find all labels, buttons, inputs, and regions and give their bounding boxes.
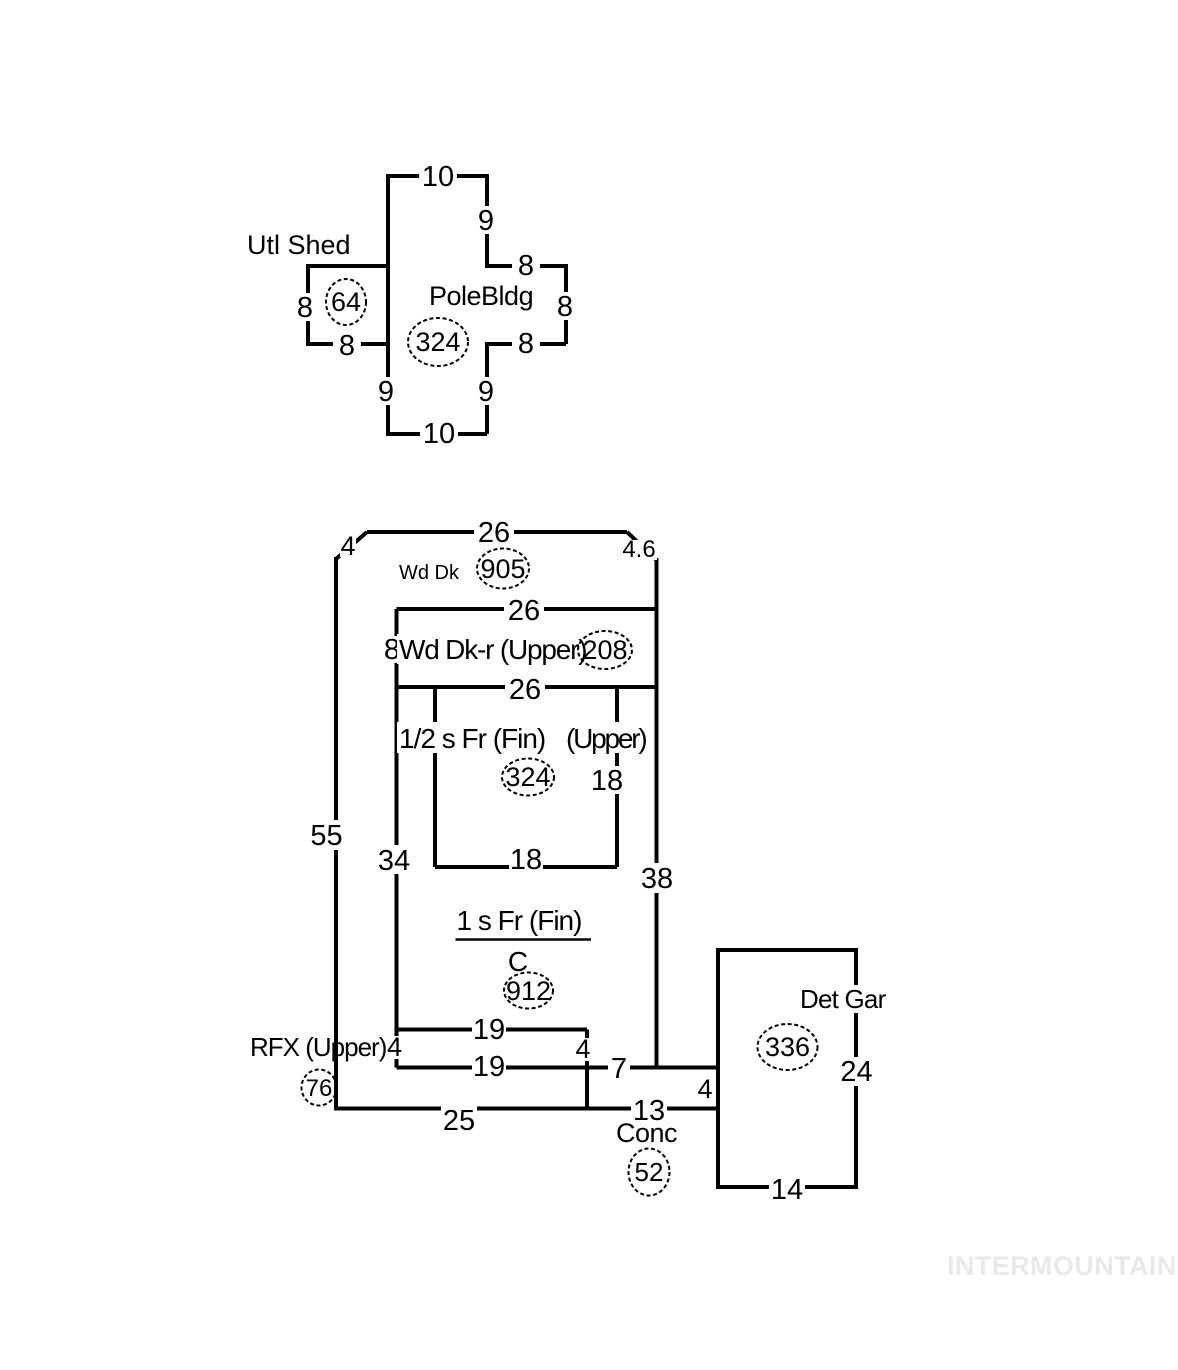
svg-text:8: 8: [297, 292, 313, 324]
svg-text:14: 14: [771, 1174, 803, 1206]
svg-text:9: 9: [378, 376, 394, 408]
svg-text:7: 7: [611, 1053, 627, 1085]
svg-text:10: 10: [423, 418, 455, 450]
svg-text:76: 76: [306, 1075, 333, 1102]
svg-text:Wd Dk-r (Upper): Wd Dk-r (Upper): [399, 634, 586, 665]
svg-text:38: 38: [641, 863, 673, 895]
svg-text:C: C: [508, 946, 528, 977]
svg-text:10: 10: [422, 161, 454, 193]
svg-text:INTERMOUNTAIN: INTERMOUNTAIN: [947, 1251, 1177, 1281]
svg-text:Wd Dk: Wd Dk: [399, 562, 460, 584]
svg-text:324: 324: [415, 327, 460, 357]
svg-text:52: 52: [635, 1157, 664, 1187]
svg-text:4: 4: [387, 1032, 402, 1062]
svg-text:26: 26: [509, 674, 541, 706]
svg-text:912: 912: [506, 976, 551, 1006]
svg-text:324: 324: [505, 762, 550, 792]
svg-text:8: 8: [339, 330, 355, 362]
svg-text:Conc: Conc: [616, 1118, 677, 1148]
svg-text:905: 905: [480, 554, 525, 584]
svg-text:25: 25: [443, 1105, 475, 1137]
svg-text:8: 8: [518, 250, 534, 282]
svg-text:4.6: 4.6: [622, 536, 655, 563]
svg-text:RFX (Upper): RFX (Upper): [250, 1032, 387, 1062]
svg-text:Utl Shed: Utl Shed: [247, 230, 351, 260]
svg-text:26: 26: [478, 517, 510, 549]
svg-text:64: 64: [331, 287, 361, 317]
svg-text:9: 9: [478, 376, 494, 408]
svg-text:26: 26: [508, 595, 540, 627]
svg-text:9: 9: [478, 205, 494, 237]
svg-text:55: 55: [310, 820, 342, 852]
svg-text:(Upper): (Upper): [566, 723, 646, 754]
svg-text:336: 336: [765, 1032, 810, 1062]
svg-text:8: 8: [518, 328, 534, 360]
svg-text:34: 34: [378, 845, 410, 877]
svg-text:1/2 s Fr (Fin): 1/2 s Fr (Fin): [399, 723, 545, 754]
svg-text:4: 4: [575, 1034, 590, 1064]
svg-text:1 s Fr (Fin): 1 s Fr (Fin): [457, 905, 582, 936]
svg-text:208: 208: [582, 635, 627, 665]
svg-text:4: 4: [697, 1074, 712, 1104]
svg-text:4: 4: [340, 531, 355, 561]
svg-text:18: 18: [510, 844, 542, 876]
svg-text:19: 19: [473, 1051, 505, 1083]
svg-text:Det Gar: Det Gar: [800, 984, 887, 1014]
svg-text:19: 19: [473, 1014, 505, 1046]
svg-text:PoleBldg: PoleBldg: [429, 281, 533, 311]
svg-text:18: 18: [591, 765, 623, 797]
svg-text:8: 8: [557, 291, 573, 323]
svg-text:24: 24: [840, 1056, 872, 1088]
